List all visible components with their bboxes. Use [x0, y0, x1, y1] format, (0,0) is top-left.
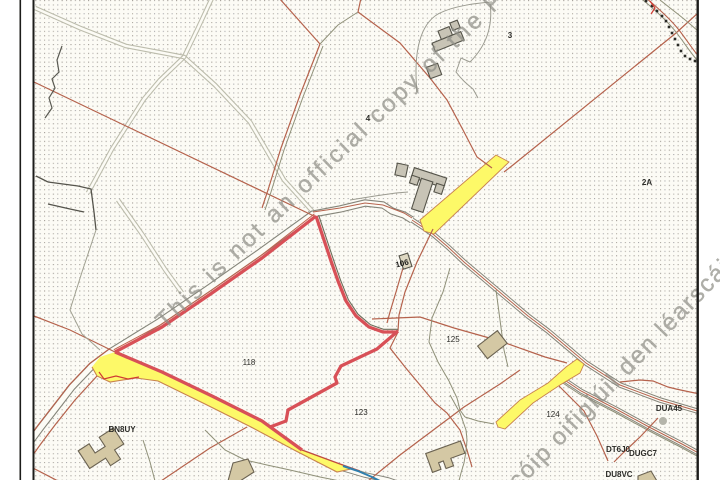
svg-text:123: 123 [354, 408, 368, 417]
svg-text:125: 125 [446, 335, 460, 344]
svg-text:118: 118 [243, 358, 256, 367]
svg-text:BN8UY: BN8UY [108, 425, 136, 434]
svg-text:DUGC7: DUGC7 [629, 449, 658, 458]
svg-text:DUA45: DUA45 [656, 404, 683, 413]
svg-text:3: 3 [508, 31, 513, 40]
svg-text:DT6J0: DT6J0 [606, 445, 631, 454]
svg-text:2A: 2A [642, 178, 652, 187]
svg-text:DU8VC: DU8VC [605, 470, 632, 479]
